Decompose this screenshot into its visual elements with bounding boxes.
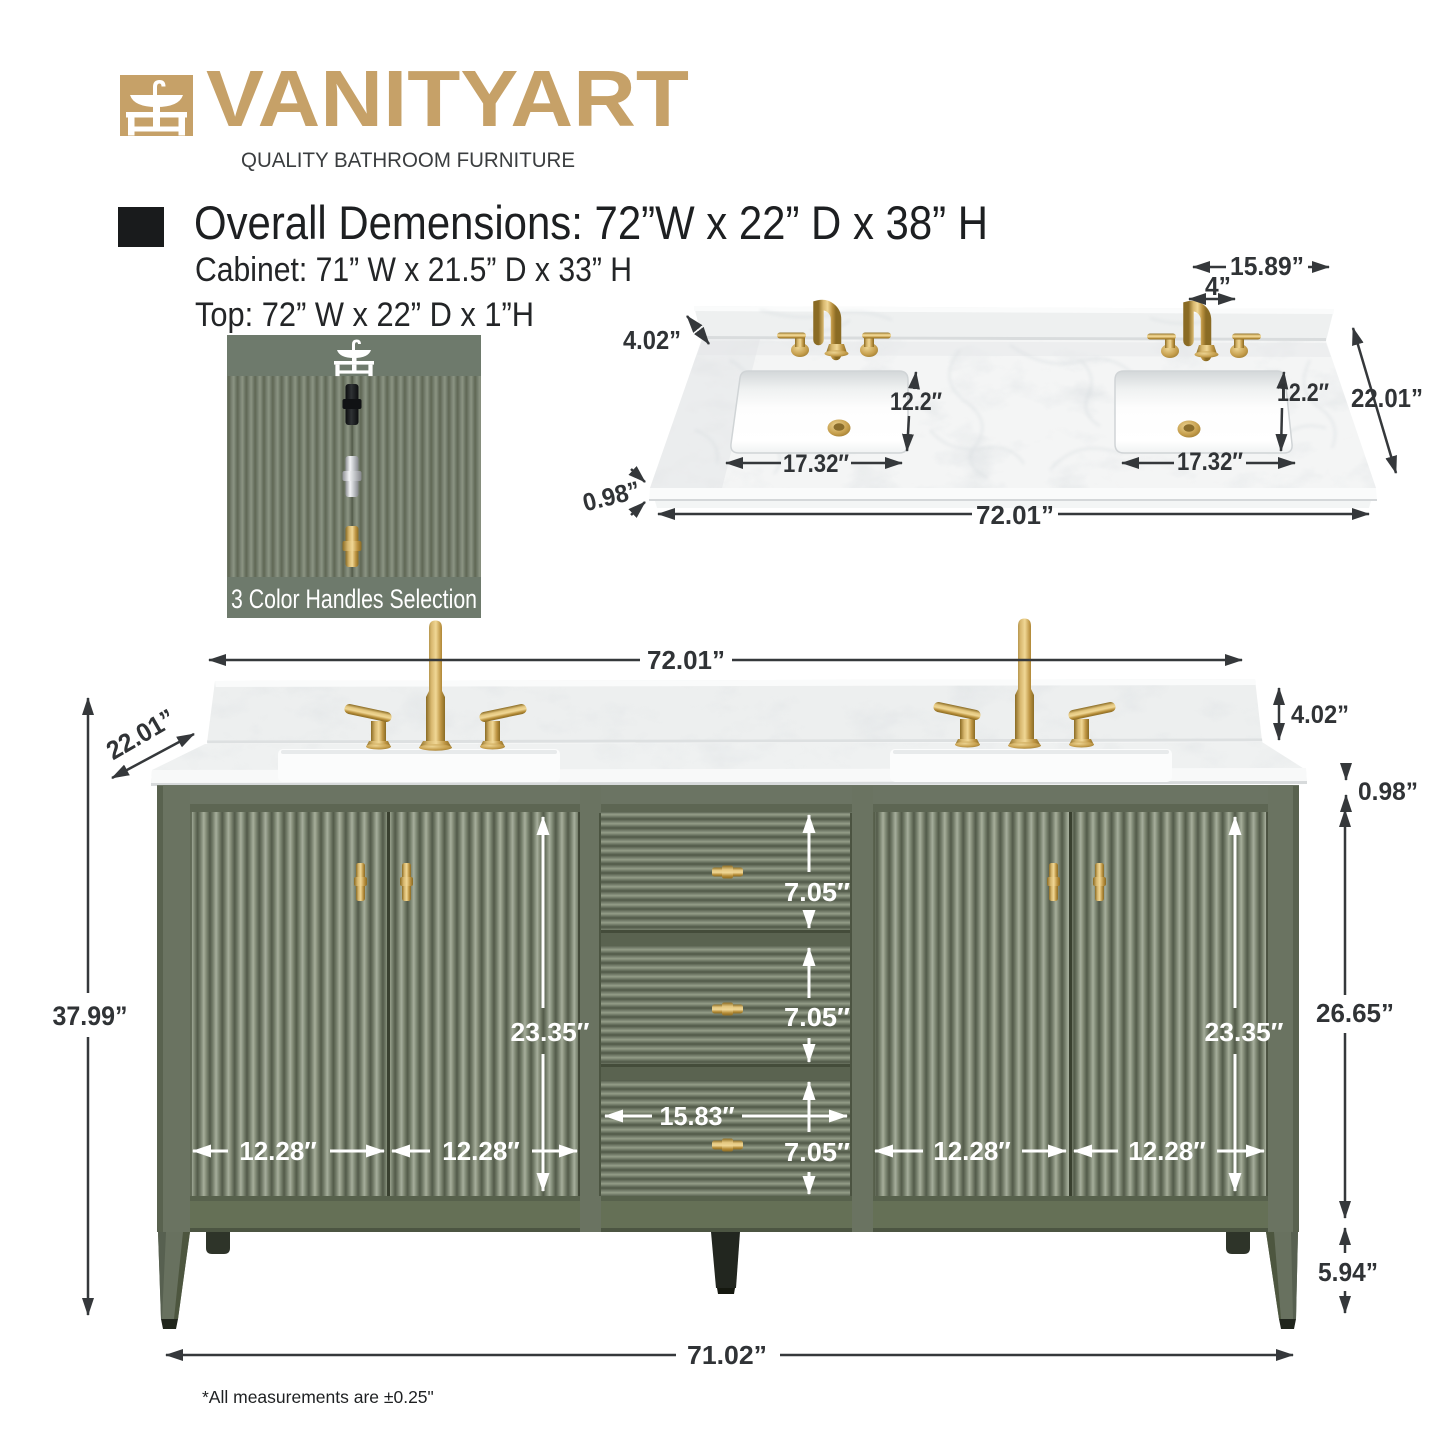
svg-text:5.94”: 5.94”: [1318, 1257, 1378, 1287]
svg-text:12.2″: 12.2″: [890, 388, 942, 416]
svg-text:15.89”: 15.89”: [1230, 251, 1304, 281]
svg-text:12.2″: 12.2″: [1277, 379, 1329, 407]
svg-text:4”: 4”: [1205, 271, 1231, 301]
svg-text:37.99”: 37.99”: [53, 1001, 128, 1031]
svg-text:23.35″: 23.35″: [511, 1017, 590, 1047]
svg-text:3 Color Handles Selection: 3 Color Handles Selection: [231, 584, 477, 614]
svg-text:Overall Demensions: 72”W x 22”: Overall Demensions: 72”W x 22” D x 38” H: [194, 196, 988, 249]
svg-text:12.28″: 12.28″: [933, 1136, 1011, 1166]
svg-text:4.02”: 4.02”: [623, 325, 681, 355]
svg-text:0.98”: 0.98”: [1358, 778, 1418, 806]
svg-text:QUALITY BATHROOM FURNITURE: QUALITY BATHROOM FURNITURE: [241, 149, 575, 172]
svg-text:15.83″: 15.83″: [660, 1101, 735, 1131]
svg-text:12.28″: 12.28″: [442, 1136, 520, 1166]
svg-text:VANITYART: VANITYART: [206, 54, 689, 143]
svg-text:71.02”: 71.02”: [687, 1340, 767, 1370]
svg-text:7.05″: 7.05″: [784, 1002, 850, 1032]
svg-text:Cabinet: 71” W x 21.5” D x 33”: Cabinet: 71” W x 21.5” D x 33” H: [195, 251, 632, 289]
svg-text:12.28″: 12.28″: [239, 1136, 317, 1166]
svg-text:12.28″: 12.28″: [1128, 1136, 1206, 1166]
svg-text:*All measurements are ±0.25": *All measurements are ±0.25": [202, 1387, 434, 1407]
svg-text:23.35″: 23.35″: [1205, 1017, 1284, 1047]
svg-text:7.05″: 7.05″: [784, 1137, 850, 1167]
svg-text:17.32″: 17.32″: [783, 450, 849, 478]
svg-text:72.01”: 72.01”: [647, 645, 725, 675]
svg-text:17.32″: 17.32″: [1177, 448, 1243, 476]
svg-text:7.05″: 7.05″: [784, 877, 850, 907]
svg-text:72.01”: 72.01”: [976, 500, 1054, 530]
svg-text:4.02”: 4.02”: [1291, 701, 1349, 729]
svg-text:Top: 72” W x 22” D x 1”H: Top: 72” W x 22” D x 1”H: [195, 296, 534, 334]
svg-text:26.65”: 26.65”: [1316, 998, 1394, 1028]
svg-text:22.01”: 22.01”: [1351, 383, 1423, 413]
